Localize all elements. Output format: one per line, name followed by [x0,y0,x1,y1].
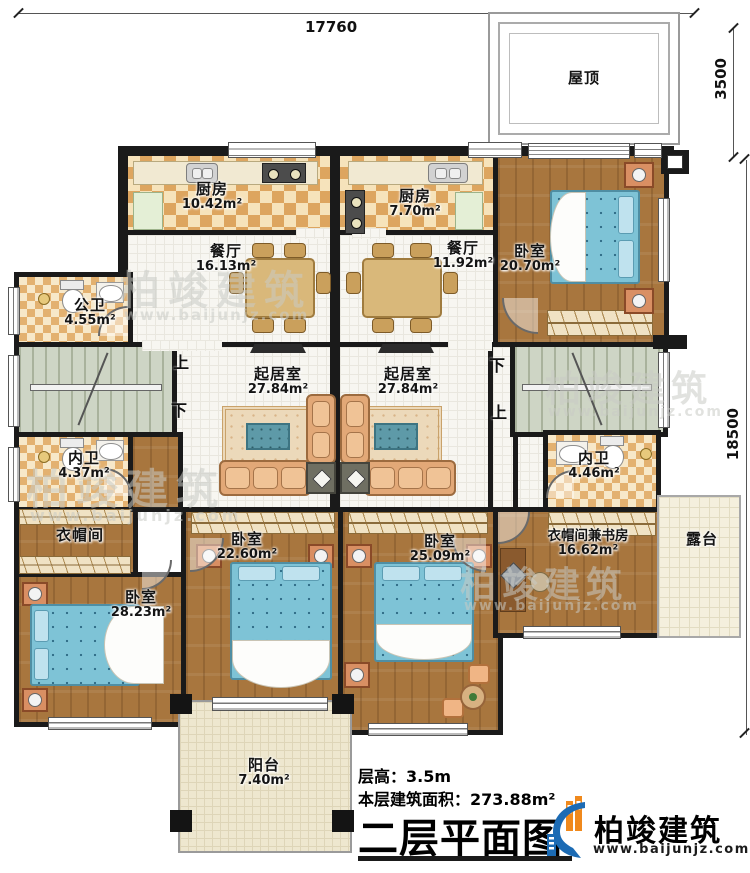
label-bedroom-mid-right: 卧室25.09m² [370,533,510,564]
label-bath-right: 内卫4.46m² [524,450,664,481]
label-bath-left: 内卫4.37m² [14,450,154,481]
nightstand [22,582,48,606]
balcony-post [332,810,354,832]
window-study [523,626,621,639]
nightstand [346,544,372,568]
dimension-tick [739,154,750,165]
stairs-left-down-label: 下 [171,397,187,421]
corner-table-right [340,462,370,494]
dimension-right-value: 18500 [724,408,742,460]
bed-pillow [618,196,634,234]
bed-pillow [282,566,320,581]
chair [443,272,458,294]
label-roof: 屋顶 [514,70,654,87]
dresser [344,662,370,688]
chair [284,318,306,333]
terrace [657,495,741,638]
chair [372,318,394,333]
window-top-roof [528,143,630,159]
chair [372,243,394,258]
label-kitchen-left: 厨房10.42m² [142,181,282,212]
chair [229,272,244,294]
balcony-post [332,694,354,714]
dimension-top-value: 17760 [305,18,357,36]
window-right-stairs [658,352,670,428]
sofa-right-horizontal [364,460,456,496]
window-right-bedroom [658,198,670,282]
title-underline [358,856,572,861]
dimension-roof-value: 3500 [712,58,730,100]
floor-plan-canvas: 17760 3500 18500 [0,0,750,873]
chair [410,318,432,333]
bed-pillow [34,610,49,642]
opening-kitchen-left [296,228,330,239]
corner-table-left [306,462,336,494]
tv-icon [250,344,306,353]
wall-left-upper [118,150,128,276]
window-bottom-left [48,717,152,730]
label-terrace: 露台 [632,531,750,548]
chair [316,272,331,294]
label-bedroom-mid-left: 卧室22.60m² [177,531,317,562]
nightstand [624,288,654,314]
nightstand [22,688,48,712]
bed-pillow [618,240,634,278]
window-top-2 [468,142,522,158]
coffee-table-left [246,423,290,450]
armchair [468,664,490,684]
chair [346,272,361,294]
kitchen-sink-icon [428,163,468,183]
bed-pillow [382,566,420,581]
closet-left-bottom [19,556,131,574]
chair [252,318,274,333]
label-public-bath: 公卫4.55m² [20,297,160,328]
balcony-post [170,810,192,832]
dimension-tick [739,728,750,739]
window-top-3 [634,143,662,158]
label-closet-left: 衣帽间 [10,527,150,544]
dimension-line-roof [733,28,734,158]
opening-dining-living-right [448,340,492,351]
stairs-left-up-label: 上 [173,349,189,373]
bed-pillow [34,648,49,680]
chimney-flue [667,155,683,169]
window-top-1 [228,142,316,158]
label-living-right: 起居室27.84m² [338,366,478,397]
desk-chair [530,572,550,592]
balcony-post [170,694,192,714]
round-table-plant [460,684,486,710]
window-left-bath [8,287,20,335]
label-bedroom-topright: 卧室20.70m² [460,243,600,274]
label-bedroom-bottomleft: 卧室28.23m² [71,589,211,620]
closet-bedroom-mid-right [348,512,488,534]
balcony-door [212,697,328,711]
bed-pillow [424,566,462,581]
nightstand [624,162,654,188]
stairs-right-up-label: 上 [491,399,507,423]
wall-jog-right [653,335,687,349]
stair-rail-left [30,384,162,391]
stairs-right-down-label: 下 [489,352,505,376]
sofa-right-vertical [340,394,370,464]
dimension-line-right [746,160,747,735]
window-left-stairs [8,355,20,427]
label-kitchen-right: 厨房7.70m² [345,188,485,219]
label-living-left: 起居室27.84m² [208,366,348,397]
bed-pillow [238,566,276,581]
label-balcony: 阳台7.40m² [194,757,334,788]
floor-height-text: 层高：3.5m [358,763,451,787]
tv-icon [378,344,434,353]
brand-url: www.baijunjz.com [593,842,750,857]
sofa-left-vertical [306,394,336,464]
coffee-table-right [374,423,418,450]
sofa-left-horizontal [219,460,311,496]
window-bottom-mid [368,723,468,736]
label-dining-left: 餐厅16.13m² [156,243,296,274]
stove-icon [262,163,306,183]
brand-logo-icon [545,796,591,860]
closet-left-top [19,509,131,525]
